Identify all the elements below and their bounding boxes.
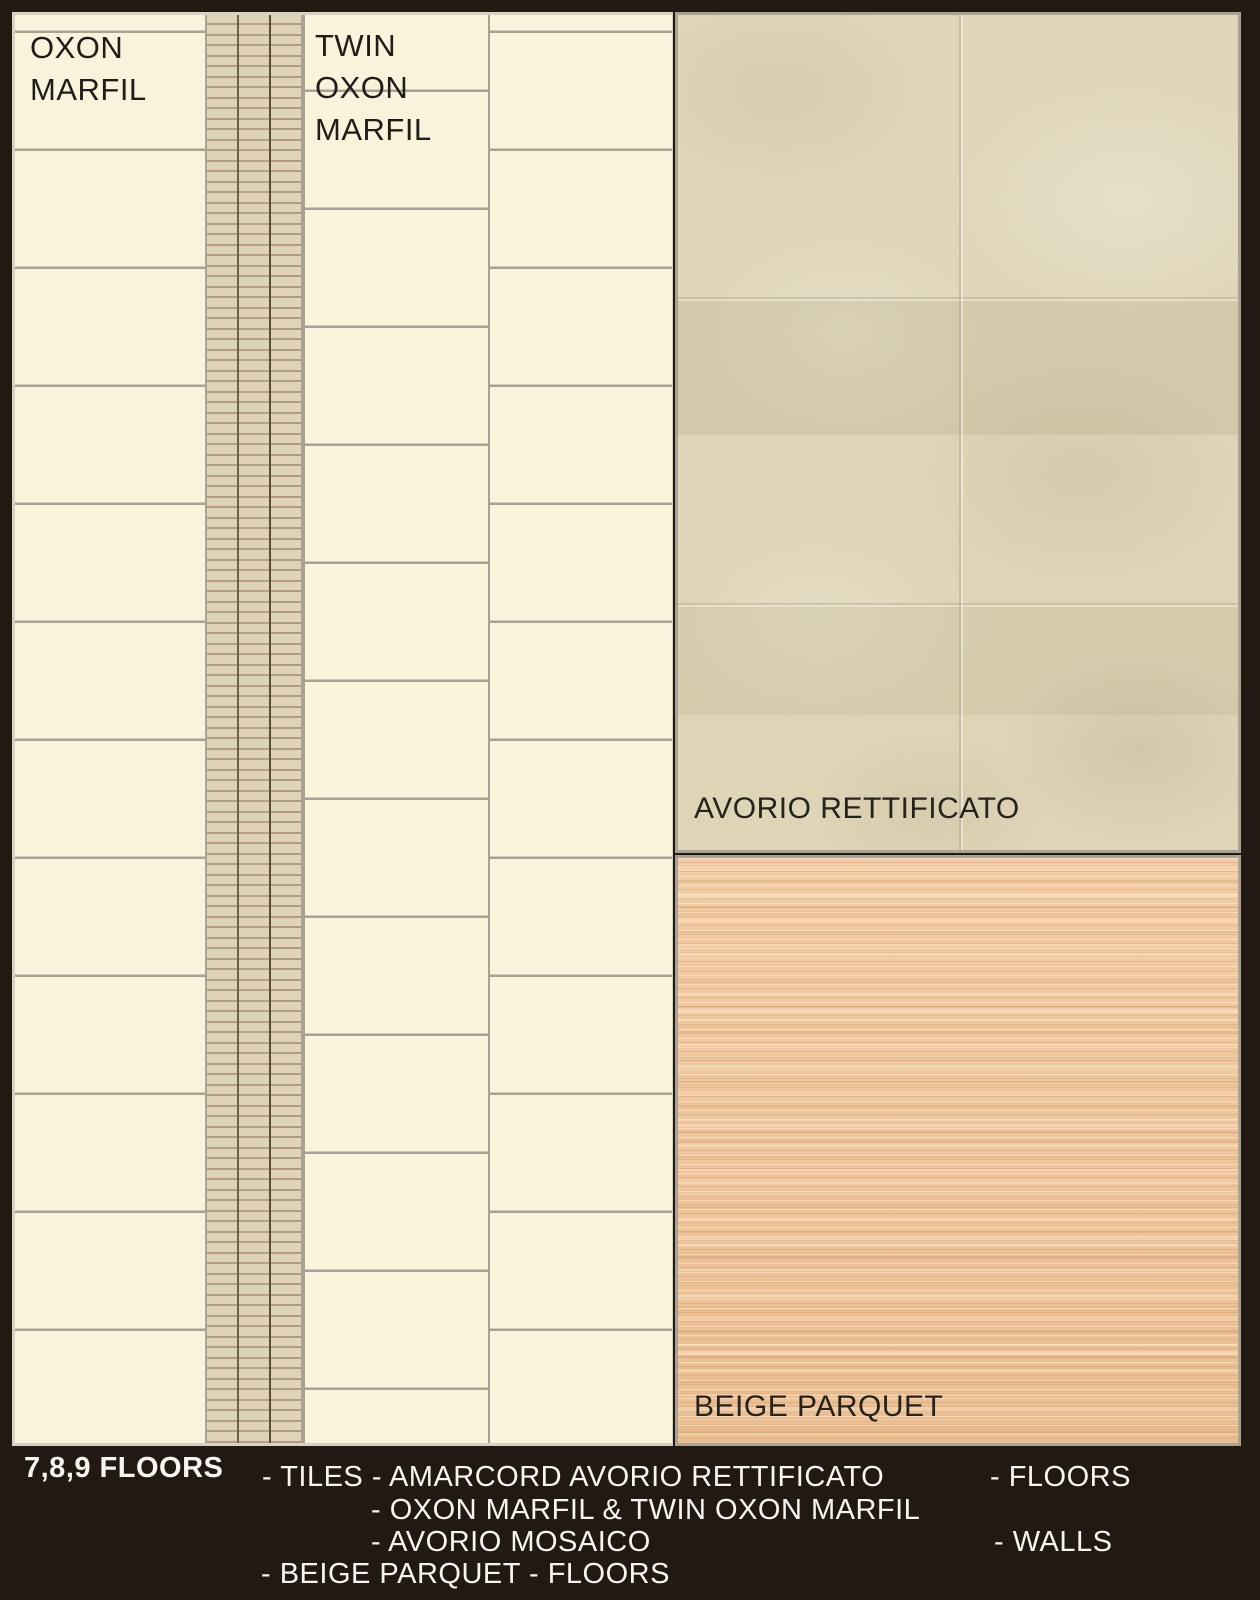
- caption-tiles-line: - TILES - AMARCORD AVORIO RETTIFICATO: [262, 1461, 884, 1494]
- wall-tiles-panel: OXON MARFIL TWIN OXON MARFIL: [15, 15, 670, 1443]
- oxon-marfil-tile-column: OXON MARFIL: [15, 15, 205, 1443]
- oxon-marfil-label: OXON MARFIL: [30, 27, 147, 111]
- twin-oxon-marfil-tile-column: TWIN OXON MARFIL: [303, 15, 490, 1443]
- avorio-mosaico-strip: [205, 15, 303, 1443]
- caption-floors-use: - FLOORS: [990, 1461, 1131, 1494]
- caption-parquet-line: - BEIGE PARQUET - FLOORS: [261, 1558, 670, 1591]
- beige-parquet-panel: BEIGE PARQUET: [678, 858, 1238, 1443]
- beige-parquet-label: BEIGE PARQUET: [694, 1390, 943, 1424]
- twin-oxon-marfil-label: TWIN OXON MARFIL: [315, 25, 432, 151]
- avorio-rettificato-panel: AVORIO RETTIFICATO: [678, 15, 1238, 850]
- caption-mosaico-line: - AVORIO MOSAICO: [371, 1526, 651, 1559]
- avorio-rettificato-label: AVORIO RETTIFICATO: [694, 792, 1020, 826]
- caption-floors-title: 7,8,9 FLOORS: [24, 1452, 223, 1485]
- tile-spec-board: OXON MARFIL TWIN OXON MARFIL AVORIO RETT…: [0, 0, 1260, 1600]
- caption-oxon-line: - OXON MARFIL & TWIN OXON MARFIL: [371, 1494, 920, 1527]
- plain-tile-column: [488, 15, 672, 1443]
- caption-walls-use: - WALLS: [994, 1526, 1112, 1559]
